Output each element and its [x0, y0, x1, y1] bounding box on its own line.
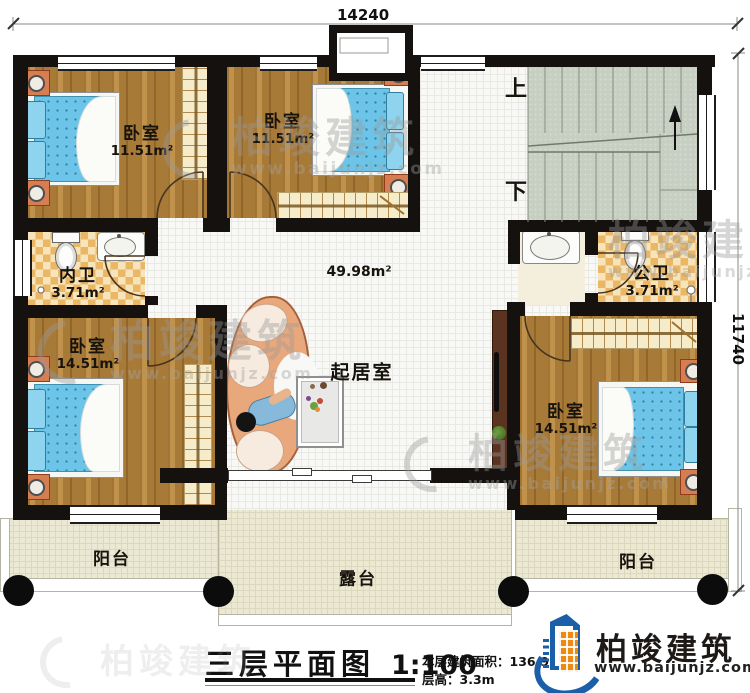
wall-segment: [485, 55, 715, 67]
wall-segment: [207, 55, 227, 232]
person-head: [236, 412, 256, 432]
sliding-door-panel: [352, 475, 372, 483]
parapet-left-bottom: [0, 578, 228, 592]
room-label-bedroom-top-left: 卧室 11.51m²: [111, 125, 174, 159]
room-area: 14.51m²: [57, 357, 120, 372]
column: [3, 575, 34, 606]
room-name: 卧室: [111, 125, 174, 144]
floor-height-label: 层高：: [422, 672, 460, 687]
floor-height-value: 3.3m: [460, 672, 495, 687]
wall-segment: [13, 55, 28, 240]
window: [567, 505, 657, 524]
room-area: 14.51m²: [535, 422, 598, 437]
wall-segment: [657, 505, 712, 520]
window: [260, 55, 317, 71]
parapet-terrace-bottom: [218, 614, 512, 626]
title-underline: [205, 678, 415, 682]
floor-area-label: 本层建筑面积：: [422, 654, 510, 669]
wall-segment: [145, 296, 158, 305]
sink-basin: [104, 237, 136, 257]
room-area: 3.71m²: [51, 286, 104, 301]
dimension-top: 14240: [337, 6, 389, 24]
watermark-logo-icon: [30, 626, 102, 693]
wall-segment: [160, 468, 228, 483]
column: [498, 576, 529, 607]
window: [58, 55, 175, 71]
faucet-dot: [117, 234, 121, 238]
wall-segment: [515, 505, 567, 520]
wall-segment: [507, 302, 520, 510]
sofa-cushion: [228, 344, 270, 388]
pillow: [26, 431, 46, 471]
room-label-bedroom-bottom-right: 卧室 14.51m²: [535, 403, 598, 437]
wall-segment: [160, 505, 222, 520]
window: [697, 95, 716, 190]
flower-decor: [317, 398, 323, 404]
wardrobe: [570, 318, 702, 349]
stairs-up-label: 上: [505, 71, 527, 103]
wall-segment: [215, 305, 227, 520]
logo-dash-column: [543, 636, 549, 668]
dimension-right: 11740: [729, 313, 747, 365]
wardrobe: [182, 66, 210, 180]
pillow: [26, 101, 46, 139]
wall-segment: [408, 55, 420, 232]
wall-segment: [13, 505, 70, 520]
wall-segment: [430, 468, 515, 483]
drawing-title: 三层平面图: [205, 641, 375, 683]
wardrobe: [184, 364, 212, 506]
room-label-bath-left: 内卫 3.71m²: [51, 267, 104, 301]
room-area: 11.51m²: [111, 144, 174, 159]
window: [697, 232, 716, 302]
brand-logo-icon: [536, 612, 596, 690]
terrace-label: 露台: [339, 565, 377, 590]
stairs-down-label: 下: [505, 174, 527, 206]
wall-segment: [145, 232, 158, 256]
table-decor: [320, 382, 327, 389]
bay-projection: [329, 25, 413, 81]
wall-segment: [13, 218, 158, 232]
wall-segment: [276, 218, 420, 232]
sink-basin: [530, 235, 570, 260]
wardrobe: [277, 192, 410, 220]
tv-screen: [494, 352, 499, 412]
column: [697, 574, 728, 605]
sliding-door: [228, 470, 432, 481]
balcony-right-label: 阳台: [619, 548, 657, 573]
plant-icon: [492, 426, 506, 440]
faucet-dot: [547, 232, 551, 236]
room-label-bedroom-top-middle: 卧室 11.51m²: [252, 113, 315, 147]
wall-segment: [585, 228, 598, 255]
window: [70, 505, 160, 524]
wall-segment: [508, 232, 520, 264]
sofa-cushion: [236, 430, 284, 472]
stairwell-floor: [528, 67, 697, 222]
living-room-label: 起居室: [330, 358, 393, 385]
wall-segment: [13, 305, 148, 318]
sliding-door-panel: [292, 468, 312, 476]
room-name: 卧室: [535, 403, 598, 422]
room-area: 11.51m²: [252, 132, 315, 147]
room-name: 公卫: [625, 265, 678, 284]
wall-segment: [697, 302, 712, 510]
parapet-right-side: [728, 508, 742, 592]
room-area: 3.71m²: [625, 284, 678, 299]
pillow: [26, 141, 46, 179]
flower-decor: [315, 407, 320, 412]
wall-segment: [520, 302, 525, 316]
wall-segment: [508, 220, 712, 232]
room-name: 内卫: [51, 267, 104, 286]
wall-segment: [203, 218, 230, 232]
brand-website: www.baijunjz.com: [594, 660, 750, 676]
pillow: [26, 389, 46, 429]
logo-orange-building: [559, 630, 578, 672]
flower-decor: [306, 396, 311, 401]
room-name: 卧室: [57, 338, 120, 357]
room-name: 卧室: [252, 113, 315, 132]
hall-area-label: 49.98m²: [326, 264, 391, 280]
wall-segment: [13, 296, 28, 505]
floor-plan-canvas: 14240 11740 卧室 11.51m² 卧室 11.51m² 内卫 3.7…: [0, 0, 750, 693]
pillow: [386, 132, 404, 170]
window: [421, 55, 485, 71]
room-label-bedroom-bottom-left: 卧室 14.51m²: [57, 338, 120, 372]
room-label-bath-right: 公卫 3.71m²: [625, 265, 678, 299]
wall-segment: [697, 55, 712, 95]
column: [203, 576, 234, 607]
table-decor: [310, 384, 315, 389]
wall-segment: [585, 293, 598, 305]
title-underline-thin: [205, 685, 415, 686]
balcony-left-label: 阳台: [93, 545, 131, 570]
pillow: [386, 92, 404, 130]
window: [13, 240, 32, 296]
